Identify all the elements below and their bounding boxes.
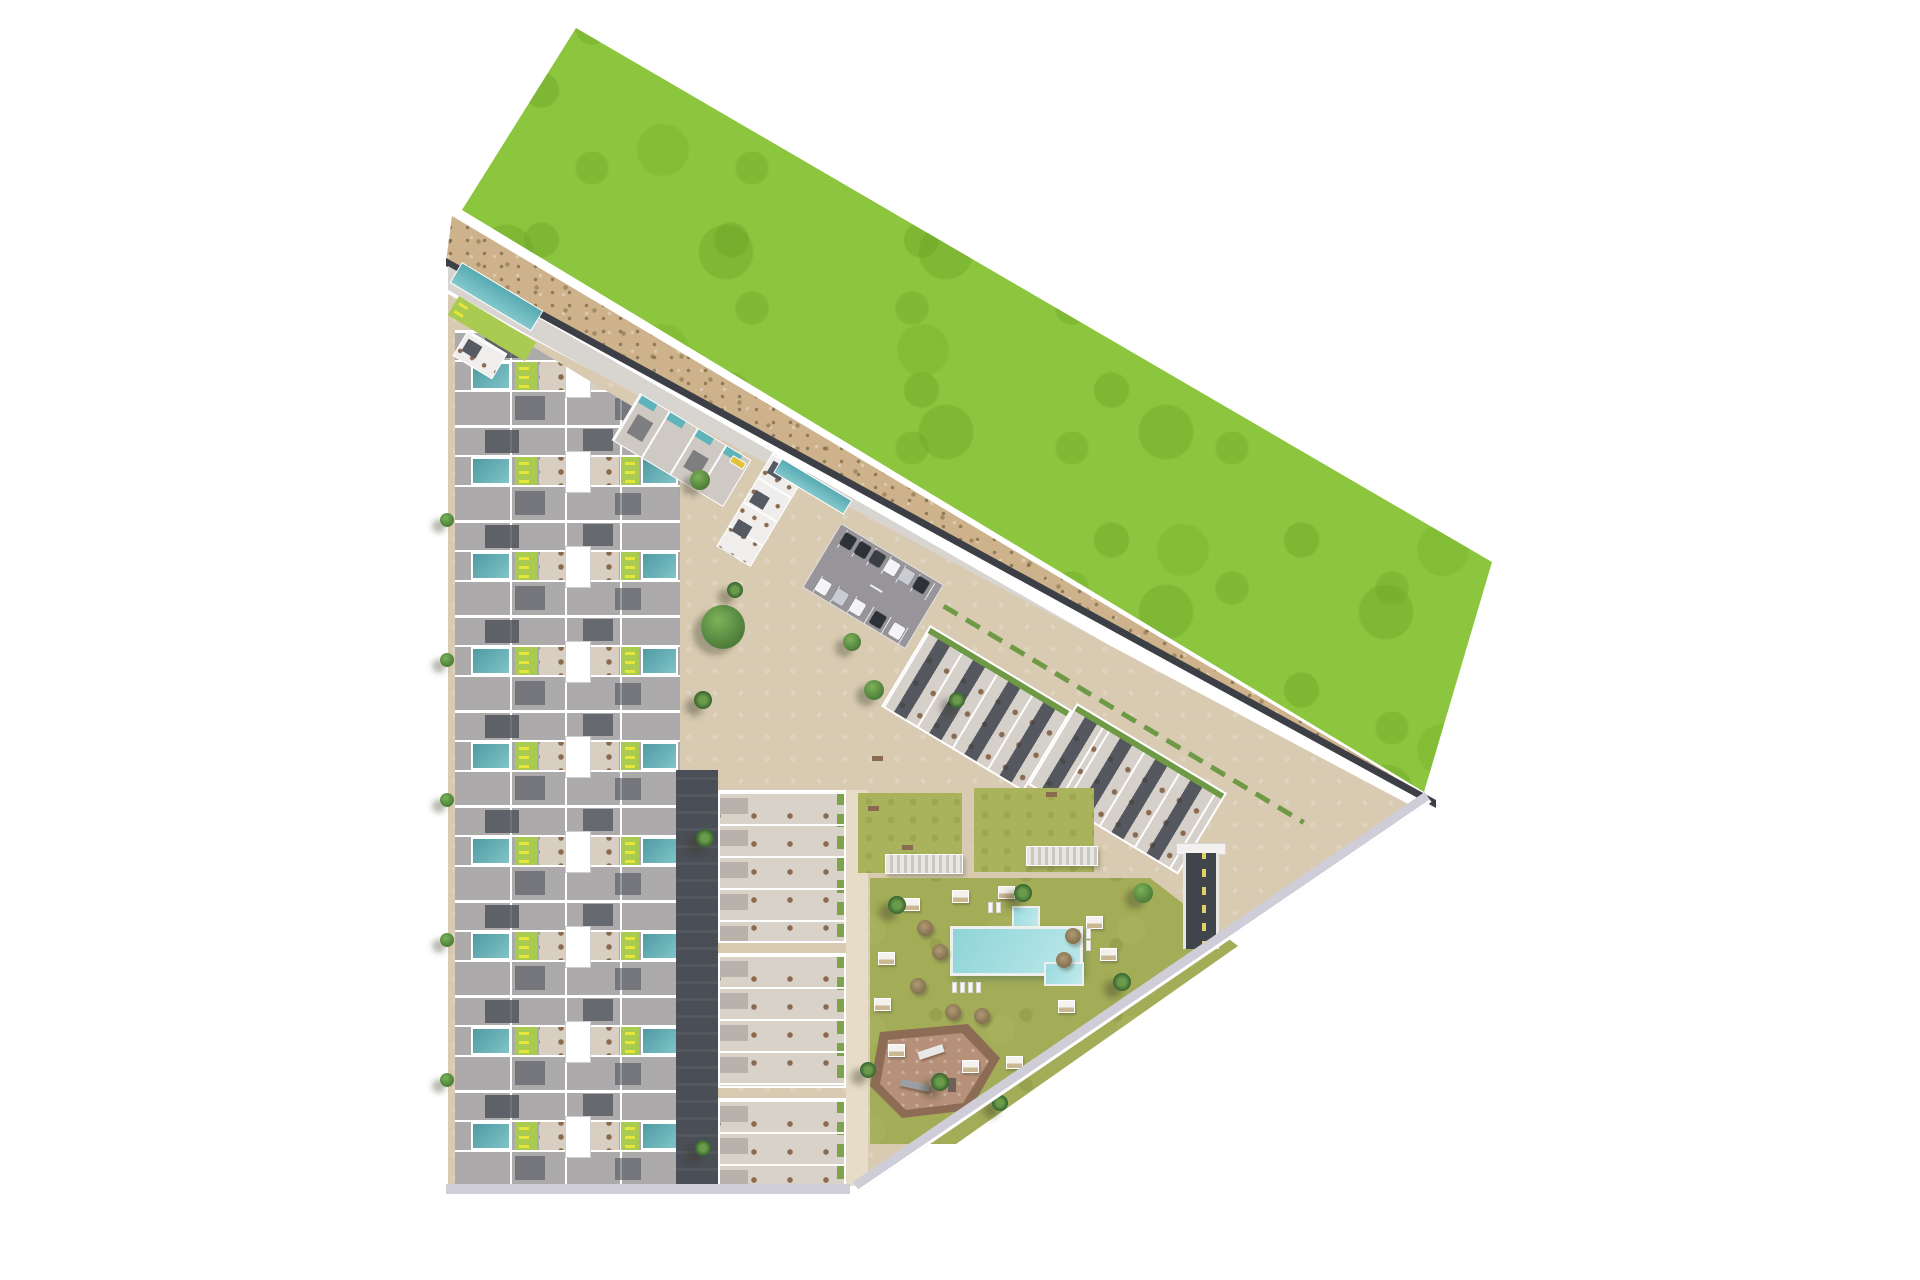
garden-strip-with-loungers bbox=[515, 837, 537, 865]
parked-car bbox=[883, 558, 901, 577]
apartment-block bbox=[718, 1098, 846, 1188]
garden-strip-with-loungers bbox=[515, 1027, 537, 1055]
sun-lounger bbox=[952, 982, 957, 993]
palm-tree bbox=[694, 691, 712, 709]
townhouse-module bbox=[455, 995, 680, 1090]
cabana bbox=[998, 886, 1015, 899]
bench bbox=[1046, 792, 1057, 797]
palm-tree bbox=[727, 582, 743, 598]
pergola bbox=[1026, 846, 1098, 866]
private-pool bbox=[471, 647, 511, 675]
round-tree bbox=[440, 513, 454, 527]
stair-core bbox=[565, 926, 591, 968]
sun-lounger bbox=[976, 982, 981, 993]
site-plan-rendering bbox=[0, 0, 1920, 1280]
private-pool bbox=[641, 837, 678, 865]
garden-strip-with-loungers bbox=[515, 552, 537, 580]
cabana bbox=[962, 1060, 979, 1073]
stair-core bbox=[565, 641, 591, 683]
garden-strip-with-loungers bbox=[515, 932, 537, 960]
garden-strip-with-loungers bbox=[621, 1027, 639, 1055]
wicker-parasol bbox=[945, 1004, 961, 1020]
parked-car bbox=[869, 610, 887, 629]
townhouse-module bbox=[455, 805, 680, 900]
round-tree bbox=[440, 1073, 454, 1087]
cabana bbox=[888, 1044, 905, 1057]
townhouse-module bbox=[455, 1090, 680, 1185]
apartment-block bbox=[718, 790, 846, 943]
bench bbox=[902, 845, 913, 850]
garden-strip-with-loungers bbox=[515, 362, 537, 390]
garden-strip-with-loungers bbox=[621, 837, 639, 865]
wicker-parasol bbox=[917, 920, 933, 936]
garden-strip-with-loungers bbox=[515, 742, 537, 770]
palm-tree bbox=[888, 896, 906, 914]
garden-strip-with-loungers bbox=[621, 457, 639, 485]
round-tree bbox=[701, 605, 745, 649]
private-pool bbox=[471, 457, 511, 485]
garden-strip-with-loungers bbox=[621, 932, 639, 960]
wicker-parasol bbox=[1056, 952, 1072, 968]
round-tree bbox=[440, 653, 454, 667]
garden-strip-with-loungers bbox=[515, 457, 537, 485]
wicker-parasol bbox=[910, 978, 926, 994]
garden-strip-with-loungers bbox=[621, 647, 639, 675]
wicker-parasol bbox=[932, 944, 948, 960]
townhouse-module bbox=[455, 900, 680, 995]
private-pool bbox=[641, 1122, 678, 1150]
palm-tree bbox=[931, 1073, 949, 1091]
private-pool bbox=[641, 932, 678, 960]
garden-strip-with-loungers bbox=[621, 742, 639, 770]
wicker-parasol bbox=[1065, 928, 1081, 944]
garden-strip-with-loungers bbox=[515, 647, 537, 675]
round-tree bbox=[1133, 883, 1153, 903]
round-tree bbox=[843, 633, 861, 651]
bench bbox=[868, 806, 879, 811]
palm-tree bbox=[696, 829, 714, 847]
parked-car bbox=[868, 549, 886, 568]
round-tree bbox=[864, 680, 884, 700]
cabana bbox=[874, 998, 891, 1011]
cabana bbox=[878, 952, 895, 965]
bench bbox=[872, 756, 883, 761]
cabana bbox=[1100, 948, 1117, 961]
pergola bbox=[885, 854, 963, 874]
private-pool bbox=[641, 742, 678, 770]
garden-strip-with-loungers bbox=[515, 1122, 537, 1150]
private-pool bbox=[641, 1027, 678, 1055]
palm-tree bbox=[949, 692, 965, 708]
palm-tree bbox=[695, 1140, 711, 1156]
townhouse-module bbox=[455, 520, 680, 615]
cabana bbox=[952, 890, 969, 903]
sidewalk-south bbox=[446, 1184, 850, 1197]
sun-lounger bbox=[960, 982, 965, 993]
palm-tree bbox=[1014, 884, 1032, 902]
private-pool bbox=[471, 552, 511, 580]
stair-core bbox=[565, 451, 591, 493]
round-tree bbox=[440, 793, 454, 807]
stair-core bbox=[565, 1021, 591, 1063]
pool-spa bbox=[1012, 906, 1040, 928]
stair-core bbox=[565, 546, 591, 588]
parked-car bbox=[912, 576, 930, 595]
parked-car bbox=[888, 622, 906, 641]
parked-car bbox=[897, 567, 915, 586]
round-tree bbox=[690, 470, 710, 490]
stair-core bbox=[565, 1116, 591, 1158]
round-tree bbox=[440, 933, 454, 947]
parked-car bbox=[831, 588, 849, 607]
palm-tree bbox=[1113, 973, 1131, 991]
sun-lounger bbox=[968, 982, 973, 993]
garden-strip-with-loungers bbox=[621, 1122, 639, 1150]
parked-car bbox=[839, 532, 857, 551]
sun-lounger bbox=[1086, 928, 1091, 939]
private-pool bbox=[471, 742, 511, 770]
garden-strip-with-loungers bbox=[621, 552, 639, 580]
wicker-parasol bbox=[974, 1008, 990, 1024]
stair-core bbox=[565, 831, 591, 873]
palm-tree bbox=[860, 1062, 876, 1078]
parked-car bbox=[854, 541, 872, 560]
private-pool bbox=[471, 1122, 511, 1150]
sun-lounger bbox=[988, 902, 993, 913]
playground-tower-icon bbox=[948, 1078, 956, 1092]
apartment-block bbox=[718, 953, 846, 1088]
private-pool bbox=[641, 552, 678, 580]
private-pool bbox=[471, 932, 511, 960]
parked-car bbox=[814, 578, 832, 597]
private-pool bbox=[641, 647, 678, 675]
townhouse-module bbox=[455, 710, 680, 805]
parked-car bbox=[848, 598, 866, 617]
cabana bbox=[1058, 1000, 1075, 1013]
stair-core bbox=[565, 736, 591, 778]
sun-lounger bbox=[1086, 940, 1091, 951]
sun-lounger bbox=[996, 902, 1001, 913]
private-pool bbox=[471, 1027, 511, 1055]
townhouse-module bbox=[455, 615, 680, 710]
private-pool bbox=[471, 837, 511, 865]
